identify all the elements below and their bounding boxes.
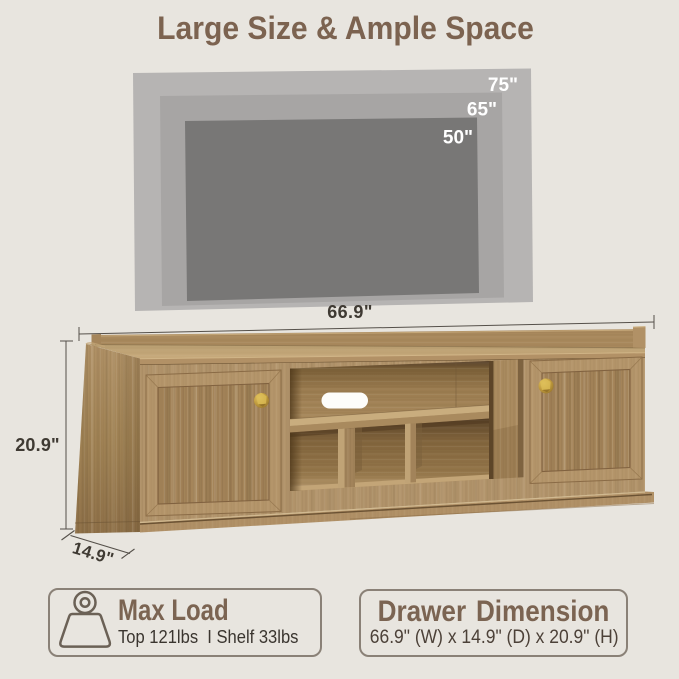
svg-text:14.9": 14.9" (70, 538, 116, 568)
svg-text:50": 50" (443, 128, 473, 149)
svg-text:20.9": 20.9" (15, 435, 60, 455)
svg-text:66.9": 66.9" (327, 302, 373, 322)
svg-text:65": 65" (467, 100, 497, 121)
svg-text:75": 75" (488, 75, 518, 96)
